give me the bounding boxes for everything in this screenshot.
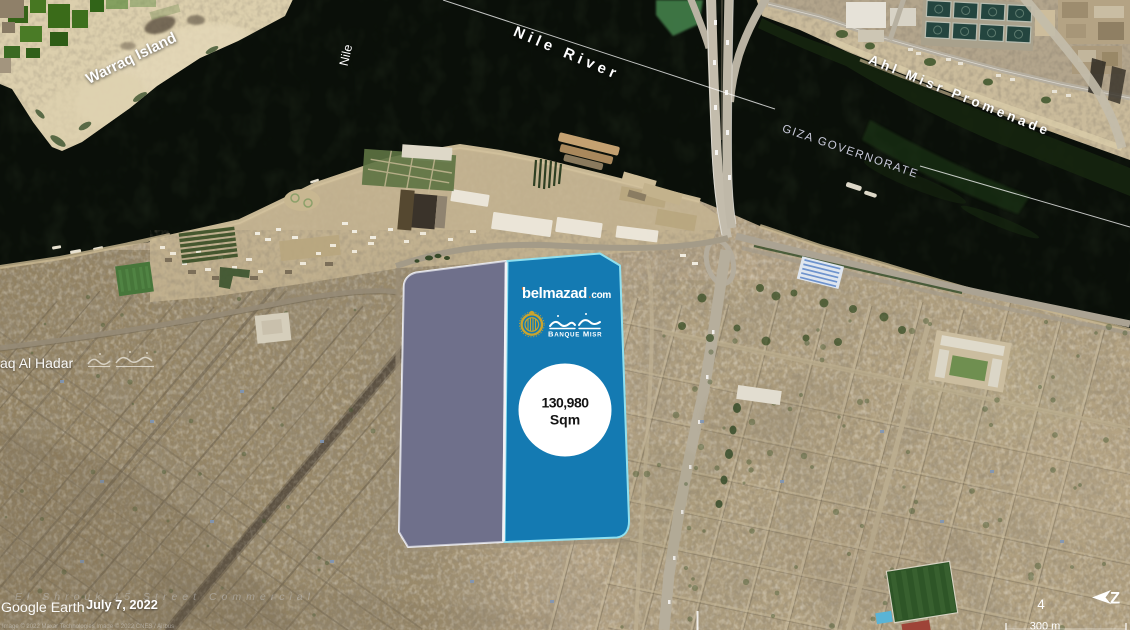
- svg-text:Z: Z: [1110, 590, 1120, 608]
- svg-text:July 7, 2022: July 7, 2022: [86, 597, 158, 612]
- svg-text:Google Earth: Google Earth: [1, 600, 85, 616]
- svg-text:130,980: 130,980: [541, 395, 589, 411]
- svg-text:4: 4: [1037, 597, 1045, 612]
- svg-text:BANQUE MISR: BANQUE MISR: [548, 330, 602, 339]
- svg-text:Image © 2022 Maxar Technologie: Image © 2022 Maxar Technologies Image © …: [2, 623, 174, 630]
- svg-text:aq Al Hadar: aq Al Hadar: [0, 355, 73, 371]
- svg-text:Sqm: Sqm: [550, 412, 580, 428]
